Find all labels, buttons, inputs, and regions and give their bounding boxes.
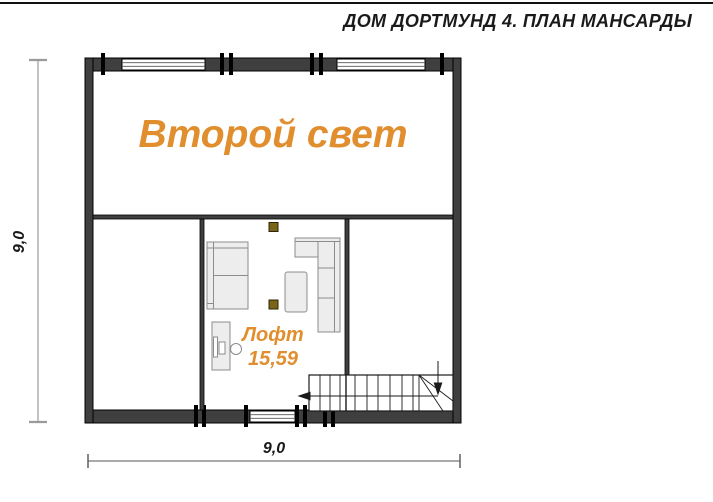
loft-area-value: 15,59 xyxy=(200,348,346,371)
dimension-width-value: 9,0 xyxy=(88,440,460,458)
left-dimension-line xyxy=(29,60,47,422)
window-top-left xyxy=(122,59,205,70)
window-bottom xyxy=(250,411,295,422)
dimension-height-value: 9,0 xyxy=(11,219,29,265)
sofa xyxy=(207,242,248,309)
beam-post-markers xyxy=(269,223,278,310)
second-light-label: Второй свет xyxy=(93,113,453,157)
loft-room-label: Лофт xyxy=(200,324,346,347)
window-top-right xyxy=(337,59,425,70)
floor-plan-drawing xyxy=(0,0,713,502)
stairs xyxy=(309,375,453,411)
coffee-table xyxy=(285,272,307,312)
attic-floor-plan-page: ДОМ ДОРТМУНД 4. ПЛАН МАНСАРДЫ xyxy=(0,0,713,502)
